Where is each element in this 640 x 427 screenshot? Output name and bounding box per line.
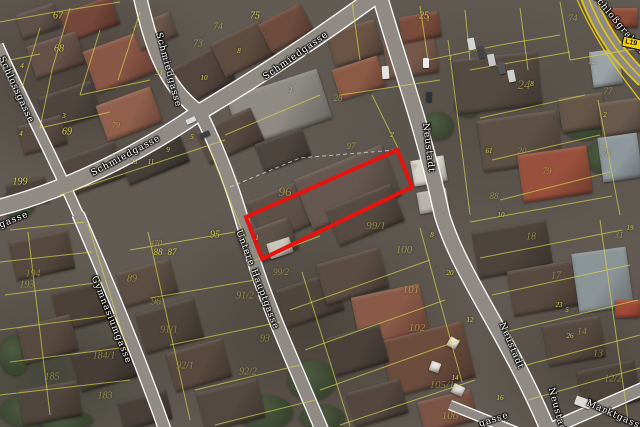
map-overlay-layer [0, 0, 640, 427]
cadastral-boundary [428, 45, 500, 60]
cadastral-boundary [0, 252, 92, 262]
cadastral-boundary [118, 12, 140, 80]
cadastral-boundary [448, 40, 470, 215]
street-surface [200, 112, 322, 427]
cadastral-boundary [470, 196, 612, 222]
cadastral-boundary [150, 280, 255, 298]
cadastral-boundary [305, 300, 445, 350]
cadastral-boundary [52, 8, 70, 70]
cadastral-boundary [10, 222, 85, 230]
cadastral-boundary [10, 348, 120, 362]
cadastral-boundary [492, 265, 630, 295]
dashed-boundary [230, 150, 395, 187]
aerial-map-view[interactable]: SchmiedgasseSchmiedgasseSchmiedgasseSchl… [0, 0, 640, 427]
cadastral-boundary [195, 365, 300, 390]
cadastral-boundary [40, 112, 110, 128]
cadastral-boundary [80, 80, 150, 95]
street-surface [200, 0, 374, 112]
cadastral-boundary [500, 35, 560, 45]
street-surface [380, 0, 548, 427]
cadastral-boundary [0, 315, 112, 330]
cadastral-boundary [0, 12, 55, 22]
cadastral-boundary [22, 28, 40, 88]
cadastral-boundary [170, 322, 280, 345]
cadastral-boundary [372, 95, 398, 148]
cadastral-boundary [340, 80, 440, 95]
highlighted-parcel-outline [246, 150, 412, 259]
cadastral-boundary [5, 282, 102, 295]
cadastral-boundary [130, 232, 235, 250]
cadastral-boundary [492, 135, 600, 160]
cadastral-boundary [470, 52, 570, 70]
cadastral-boundary [40, 70, 52, 128]
cadastral-boundary [320, 340, 460, 390]
cadastral-boundary [420, 6, 428, 60]
cadastral-boundary [0, 380, 130, 395]
cadastral-boundary [88, 224, 128, 352]
cadastral-boundary [55, 2, 120, 12]
cadastral-boundary [515, 335, 640, 368]
street-surface [450, 405, 522, 427]
cadastral-boundary [600, 220, 628, 420]
cadastral-boundary [505, 300, 638, 332]
cadastral-boundary [215, 400, 315, 425]
cadastral-boundary [480, 230, 622, 258]
cadastral-boundary [80, 30, 100, 95]
cadastral-boundary [225, 95, 320, 135]
route-badge-label: L19 [624, 38, 637, 47]
street-surface [0, 112, 200, 208]
cadastral-boundary [500, 172, 610, 200]
cadastral-boundary [480, 95, 585, 118]
cadastral-boundary [560, 2, 570, 60]
